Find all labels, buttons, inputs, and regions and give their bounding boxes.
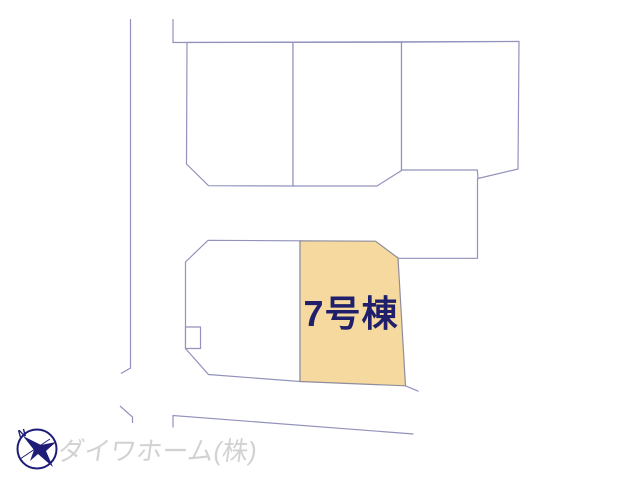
parcel-lower-left	[186, 240, 301, 381]
parcel-upper-3	[402, 42, 520, 179]
parcel-upper-2	[293, 42, 402, 186]
block-top-boundary	[173, 19, 519, 43]
compass-n-label: N	[17, 427, 28, 441]
road-edge-left	[121, 19, 131, 374]
site-plan-drawing	[0, 0, 640, 480]
road-angle-mark	[120, 406, 133, 423]
compass-north-icon: N	[10, 421, 64, 477]
parcel-lower-left-porch	[186, 327, 201, 349]
parcel-upper-1	[187, 42, 294, 186]
road-corner-right	[398, 179, 478, 259]
site-plan-canvas: 7号棟 N ダイワホーム(株)	[0, 0, 640, 480]
bottom-boundary-extension	[406, 386, 419, 392]
highlighted-parcel-label: 7号棟	[299, 294, 403, 334]
company-watermark: ダイワホーム(株)	[56, 431, 260, 468]
